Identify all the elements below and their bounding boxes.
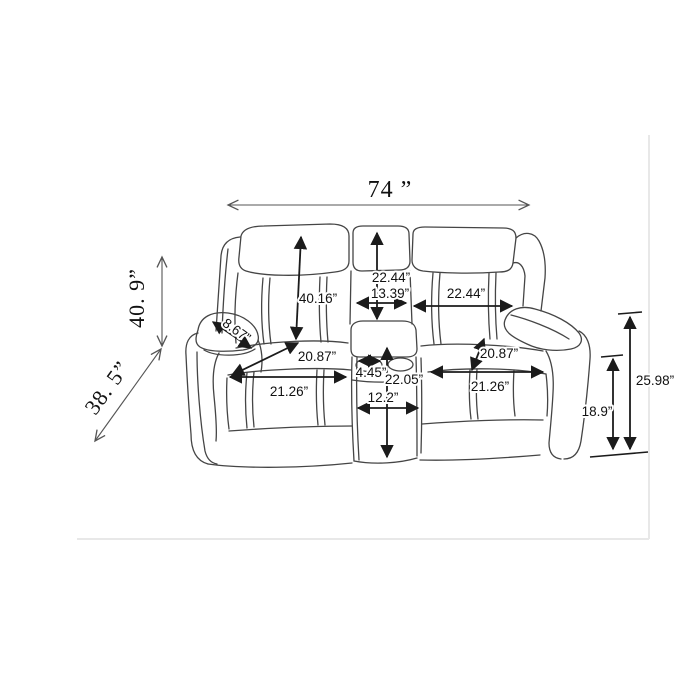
cap-arm-height — [618, 312, 642, 314]
label-back-height: 40.16” — [299, 291, 337, 306]
right-back-seam-1 — [432, 273, 441, 344]
label-total-height: 40. 9” — [124, 268, 149, 328]
label-console-base-width: 12.2” — [368, 390, 399, 405]
right-armrest-pad — [504, 307, 581, 350]
left-back-seam-2 — [319, 277, 328, 342]
ground-line — [590, 452, 648, 457]
overall-dimension-arrows — [95, 205, 529, 441]
right-skirt-seam — [422, 420, 543, 424]
left-back-seam-1 — [262, 278, 271, 344]
label-console-back-height: 22.44” — [372, 270, 410, 285]
label-backrest-width: 22.44” — [447, 286, 485, 301]
right-arm-front-edge — [546, 351, 561, 459]
label-seat-width-right: 21.26” — [471, 379, 509, 394]
left-arm-front-crease — [213, 353, 219, 441]
dimension-diagram-page: 74 ” 40. 9” 38. 5” 40.16” 22.44” 13.39” … — [0, 0, 700, 700]
left-skirt-bottom — [208, 463, 352, 467]
left-armrest-underline — [204, 349, 255, 355]
arrow-back-height — [296, 237, 301, 339]
left-seat-seam-1 — [246, 372, 255, 428]
console-back-left-edge — [350, 271, 351, 324]
cap-seat-height — [601, 355, 623, 357]
right-seat-seam-2 — [513, 370, 515, 416]
right-seat-seam-1 — [469, 369, 478, 419]
label-total-depth: 38. 5” — [79, 356, 134, 419]
label-seat-height: 18.9” — [582, 404, 613, 419]
label-console-height: 22.05” — [385, 372, 423, 387]
left-seat-seam-2 — [316, 370, 325, 425]
label-arm-height: 25.98” — [636, 373, 674, 388]
label-seat-depth-right: 20.87” — [480, 346, 518, 361]
label-total-width: 74 ” — [368, 177, 413, 203]
right-headrest — [412, 227, 516, 273]
right-back-wing-inner — [513, 263, 525, 306]
label-armrest-width: 8.67” — [220, 315, 254, 345]
console-lid — [351, 321, 417, 357]
photo-frame-border — [77, 135, 649, 539]
label-seat-depth-left: 20.87” — [298, 349, 336, 364]
label-cupholder-width: 4.45” — [356, 365, 387, 380]
dimension-labels: 74 ” 40. 9” 38. 5” 40.16” 22.44” 13.39” … — [79, 177, 674, 419]
right-back-wing-outer — [516, 233, 545, 311]
console-headrest — [353, 226, 410, 271]
left-headrest — [239, 224, 349, 275]
right-seat-right-edge — [546, 374, 548, 416]
console-bottom — [354, 458, 417, 463]
cupholder-right — [388, 358, 413, 371]
label-console-top-width: 13.39” — [371, 286, 409, 301]
left-seat-left-edge — [227, 378, 229, 429]
right-skirt-bottom — [420, 455, 540, 460]
label-seat-width-left: 21.26” — [270, 384, 308, 399]
console-back-right-edge — [410, 271, 412, 324]
loveseat-dimension-diagram: 74 ” 40. 9” 38. 5” 40.16” 22.44” 13.39” … — [0, 0, 700, 700]
